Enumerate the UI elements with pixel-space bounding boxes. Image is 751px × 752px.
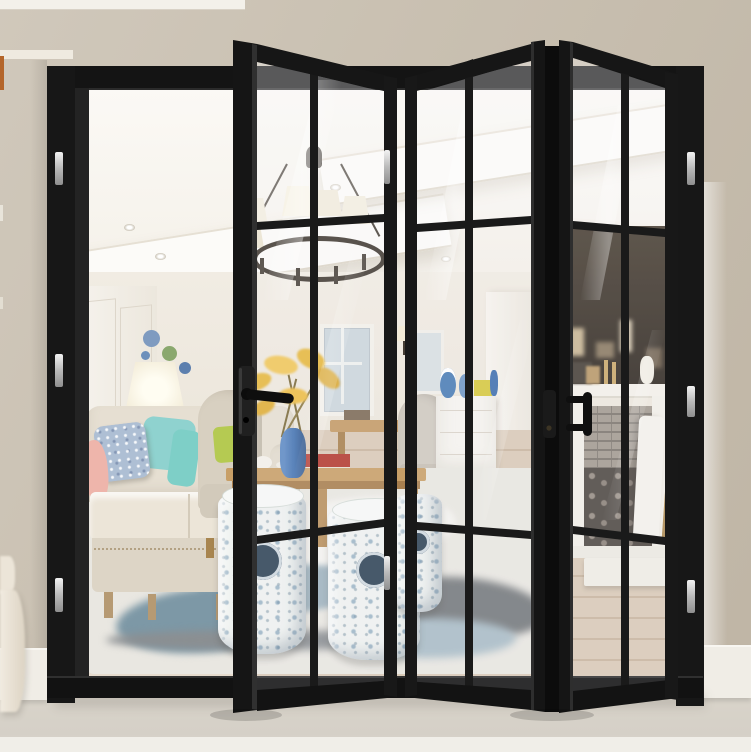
orange-object-edge — [0, 56, 4, 90]
wall-trim-line — [0, 50, 73, 59]
sconce-left-shade — [396, 326, 413, 341]
flower-cluster-6 — [250, 395, 278, 419]
exterior-floor-light-strip — [0, 737, 751, 752]
hinge-right-mid-icon — [687, 386, 695, 417]
garden-stool-1-top — [222, 484, 305, 508]
right-casing-highlight — [703, 182, 727, 668]
shelf-decor-1 — [570, 328, 584, 356]
chandelier-shade-2 — [282, 186, 314, 216]
chandelier-candle-2 — [296, 268, 300, 286]
right-baseboard — [700, 645, 751, 698]
hinge-left-bottom-icon — [55, 578, 63, 612]
garden-stool-1 — [218, 490, 306, 654]
mantel-decor-horse — [586, 366, 600, 384]
frame-right-jamb — [676, 66, 704, 706]
sideboard-drawer-1 — [440, 410, 492, 411]
flower-cluster-4 — [312, 363, 344, 393]
chandelier-candle-3 — [334, 266, 338, 284]
coffee-table-leg-2 — [318, 489, 327, 547]
hinge-left-mid-icon — [55, 354, 63, 387]
back-doorframe — [410, 330, 444, 394]
chandelier-shade-5 — [238, 224, 264, 248]
fireplace-mantel-shelf — [556, 384, 678, 396]
flower-cluster-5 — [278, 388, 308, 404]
flower-cluster-1 — [240, 369, 274, 394]
sideboard-drawer-3 — [440, 454, 492, 455]
garden-stool-3-medallion — [406, 530, 430, 554]
edge-dash-2 — [0, 297, 3, 309]
shelf-decor-2 — [596, 342, 614, 358]
interior-room — [0, 0, 751, 752]
ceiling-strip — [0, 0, 245, 10]
downlight-6 — [441, 256, 451, 262]
hinge-left-top-icon — [55, 152, 63, 185]
chandelier — [230, 140, 390, 290]
mantel-candlestick-1 — [604, 360, 608, 384]
sofa-leg-1 — [104, 592, 113, 618]
hinge-right-top-icon — [687, 152, 695, 185]
wall-plate-3 — [179, 362, 191, 374]
garden-stool-2-medallion — [356, 552, 392, 588]
left-casing-shadow — [30, 60, 47, 700]
mantel-vase-white — [640, 356, 654, 384]
chandelier-shade-1 — [238, 198, 268, 226]
chandelier-candle-4 — [362, 254, 366, 270]
wall-plate-5 — [141, 351, 150, 360]
wall-plate-1 — [143, 330, 160, 347]
panel-3-top-rail — [405, 44, 531, 94]
frame-left-jamb — [47, 66, 75, 703]
armchair-leg-1 — [206, 538, 214, 558]
bifold-door-product-photo — [0, 0, 751, 752]
foreground-vase-body — [0, 590, 25, 712]
hearth-step — [584, 558, 678, 586]
chandelier-shade-3 — [314, 190, 342, 216]
sconce-left-stem — [403, 341, 406, 355]
shelf-decor-3 — [620, 320, 632, 352]
panel-2-top-rail — [257, 44, 397, 94]
chandelier-shade-4 — [340, 196, 370, 224]
table-books — [344, 410, 370, 420]
garden-stool-1-medallion — [244, 542, 282, 580]
chandelier-finial — [306, 146, 322, 168]
foreground-vase — [0, 556, 15, 594]
frame-header — [47, 66, 703, 90]
wall-plate-2 — [162, 346, 177, 361]
blue-jar-2 — [459, 374, 472, 398]
chandelier-candle-1 — [260, 258, 264, 274]
sofa-seat-seam — [188, 494, 190, 538]
sofa-leg-2 — [148, 594, 156, 620]
garden-stool-3 — [394, 494, 442, 612]
flower-arrangement — [238, 348, 344, 480]
blue-jar-1 — [440, 368, 456, 398]
edge-dash-1 — [0, 205, 3, 221]
fireplace-hearth — [556, 546, 678, 558]
blue-bottle — [490, 370, 498, 396]
blue-vase — [280, 428, 306, 478]
sideboard-drawer-2 — [440, 432, 492, 433]
mantel-candlestick-2 — [612, 362, 616, 384]
panel-4-top-rail — [573, 42, 678, 90]
hinge-right-bottom-icon — [687, 580, 695, 613]
downlight-1 — [124, 224, 135, 231]
downlight-2 — [155, 253, 166, 260]
